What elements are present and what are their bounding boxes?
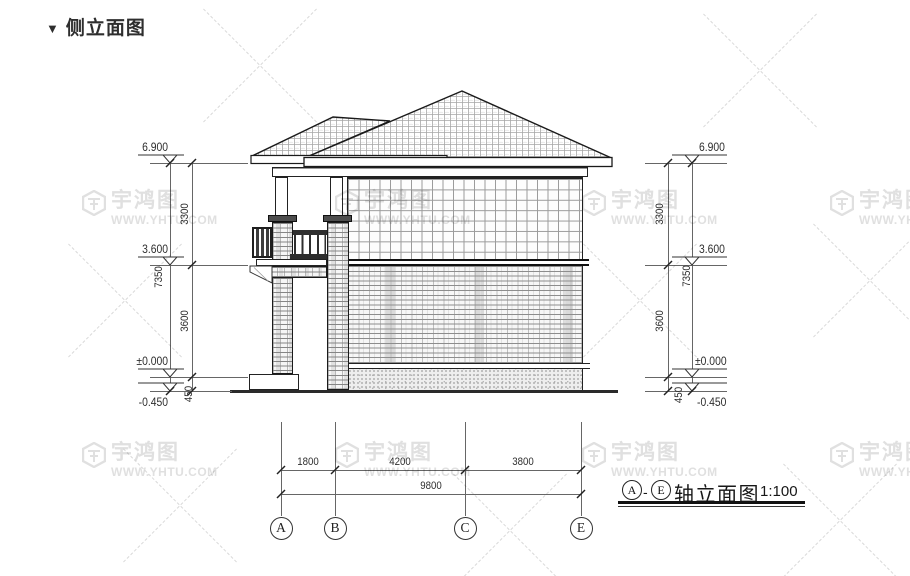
watermark-brand: 宇鸿图 bbox=[364, 442, 471, 463]
dim-line-bottom-chain bbox=[281, 470, 581, 471]
watermark-brand: 宇鸿图 bbox=[859, 190, 910, 211]
axis-extension-a bbox=[281, 422, 282, 516]
watermark-brand: 宇鸿图 bbox=[611, 442, 718, 463]
dim-label-left-3600: 3600 bbox=[179, 310, 191, 332]
diagonal-dash bbox=[783, 464, 897, 576]
diagonal-dash bbox=[703, 14, 817, 128]
floor-belt-course bbox=[347, 259, 589, 266]
second-floor-wall bbox=[347, 177, 583, 259]
roof-secondary bbox=[251, 117, 390, 158]
elevation-label-right-neg450: -0.450 bbox=[697, 397, 751, 409]
diagonal-dash bbox=[583, 244, 697, 358]
diagonal-dash bbox=[783, 464, 897, 576]
watermark-logo-icon bbox=[82, 442, 106, 468]
axis-bubble-e: E bbox=[570, 517, 593, 540]
drawing-canvas: ▼ 侧立面图 6.900 3.600 ±0.000 -0.450 3300 36… bbox=[0, 0, 910, 576]
elevation-label-left-6900: 6.900 bbox=[125, 142, 168, 154]
caption-underline-thin bbox=[618, 506, 805, 507]
watermark-brand: 宇鸿图 bbox=[111, 442, 218, 463]
dim-line-bottom-overall bbox=[281, 494, 581, 495]
balcony-balusters bbox=[294, 235, 326, 255]
diagonal-dash bbox=[203, 9, 317, 123]
dim-label-left-450: 450 bbox=[183, 386, 195, 402]
balcony-brick-band bbox=[262, 266, 327, 278]
dim-label-left-7350: 7350 bbox=[153, 266, 165, 288]
elevation-label-right-zero: ±0.000 bbox=[695, 356, 749, 368]
brick-pillar-left bbox=[272, 222, 293, 374]
axis-bubble-b: B bbox=[324, 517, 347, 540]
porch-column-upper-right bbox=[330, 177, 343, 216]
watermark-url: WWW.YHTU.COM bbox=[111, 214, 218, 226]
level-line-right-zero bbox=[645, 377, 727, 378]
diagonal-dash bbox=[703, 14, 817, 128]
watermark-logo-icon bbox=[830, 190, 854, 216]
watermark-url: WWW.YHTU.COM bbox=[859, 466, 910, 478]
level-line-right-6900 bbox=[645, 163, 727, 164]
dim-label-right-3300: 3300 bbox=[654, 203, 666, 225]
diagonal-dash bbox=[203, 9, 317, 123]
elevation-label-left-3600: 3.600 bbox=[125, 244, 168, 256]
diagonal-dash bbox=[123, 449, 237, 563]
watermark-logo-icon bbox=[582, 442, 606, 468]
elevation-label-right-3600: 3.600 bbox=[699, 244, 753, 256]
title-triangle-icon: ▼ bbox=[46, 22, 59, 35]
dim-label-left-3300: 3300 bbox=[179, 203, 191, 225]
watermark-logo-icon bbox=[582, 190, 606, 216]
balcony-slab bbox=[256, 259, 327, 266]
bay-window bbox=[252, 227, 272, 258]
ground-line bbox=[230, 390, 618, 393]
dim-label-4200: 4200 bbox=[389, 456, 411, 468]
diagonal-dash bbox=[123, 449, 237, 563]
diagonal-dash bbox=[813, 224, 910, 338]
watermark-logo-icon bbox=[830, 442, 854, 468]
watermark-url: WWW.YHTU.COM bbox=[364, 466, 471, 478]
elevation-label-right-6900: 6.900 bbox=[699, 142, 753, 154]
diagonal-dash bbox=[68, 244, 182, 358]
eave-fascia bbox=[272, 167, 588, 177]
diagonal-dash bbox=[583, 244, 697, 358]
watermark-url: WWW.YHTU.COM bbox=[859, 214, 910, 226]
level-line-left-zero bbox=[150, 377, 248, 378]
diagonal-dash bbox=[68, 244, 182, 358]
dim-label-right-3600: 3600 bbox=[654, 310, 666, 332]
brick-pillar-right bbox=[327, 222, 349, 390]
caption-axis-to-bubble: E bbox=[651, 480, 671, 500]
watermark: 宇鸿图WWW.YHTU.COM bbox=[830, 190, 910, 226]
watermark: 宇鸿图WWW.YHTU.COM bbox=[830, 442, 910, 478]
watermark: 宇鸿图WWW.YHTU.COM bbox=[582, 442, 718, 478]
axis-extension-c bbox=[465, 422, 466, 516]
elevation-label-left-zero: ±0.000 bbox=[125, 356, 168, 368]
watermark: 宇鸿图WWW.YHTU.COM bbox=[82, 442, 218, 478]
diagonal-dash bbox=[813, 224, 910, 338]
pillar-cap-left bbox=[268, 215, 297, 222]
watermark-url: WWW.YHTU.COM bbox=[111, 466, 218, 478]
watermark-brand: 宇鸿图 bbox=[111, 190, 218, 211]
axis-bubble-c: C bbox=[454, 517, 477, 540]
axis-bubble-a: A bbox=[270, 517, 293, 540]
elevation-label-left-neg450: -0.450 bbox=[125, 397, 168, 409]
dim-label-3800: 3800 bbox=[512, 456, 534, 468]
caption-underline-thick bbox=[618, 501, 805, 504]
eave-band-main bbox=[304, 158, 612, 167]
dim-line-left-overall bbox=[170, 163, 171, 391]
caption-axis-from-bubble: A bbox=[622, 480, 642, 500]
axis-extension-e bbox=[581, 422, 582, 516]
porch-column-upper-left bbox=[275, 177, 288, 216]
pillar-cap-right bbox=[323, 215, 352, 222]
dim-line-left-chain bbox=[192, 163, 193, 391]
caption-dash: - bbox=[643, 484, 648, 500]
watermark-logo-icon bbox=[82, 190, 106, 216]
level-line-left-6900 bbox=[150, 163, 248, 164]
eave-band-secondary bbox=[251, 156, 447, 164]
axis-extension-b bbox=[335, 422, 336, 516]
level-line-right-neg450 bbox=[645, 391, 727, 392]
dim-line-right-chain bbox=[668, 163, 669, 391]
first-floor-wall bbox=[347, 266, 583, 363]
watermark: 宇鸿图WWW.YHTU.COM bbox=[82, 190, 218, 226]
dim-label-right-7350: 7350 bbox=[681, 265, 693, 287]
plinth-base bbox=[347, 369, 583, 390]
porch-step bbox=[249, 374, 299, 390]
page-title: ▼ 侧立面图 bbox=[46, 19, 146, 38]
watermark: 宇鸿图WWW.YHTU.COM bbox=[582, 190, 718, 226]
caption-scale: 1:100 bbox=[760, 483, 798, 500]
watermark-brand: 宇鸿图 bbox=[859, 442, 910, 463]
watermark-logo-icon bbox=[335, 442, 359, 468]
roof-main bbox=[305, 91, 612, 158]
dim-label-right-450: 450 bbox=[673, 387, 685, 403]
watermark-url: WWW.YHTU.COM bbox=[611, 466, 718, 478]
dim-label-1800: 1800 bbox=[297, 456, 319, 468]
dim-label-9800: 9800 bbox=[420, 480, 442, 492]
title-text: 侧立面图 bbox=[66, 19, 146, 38]
